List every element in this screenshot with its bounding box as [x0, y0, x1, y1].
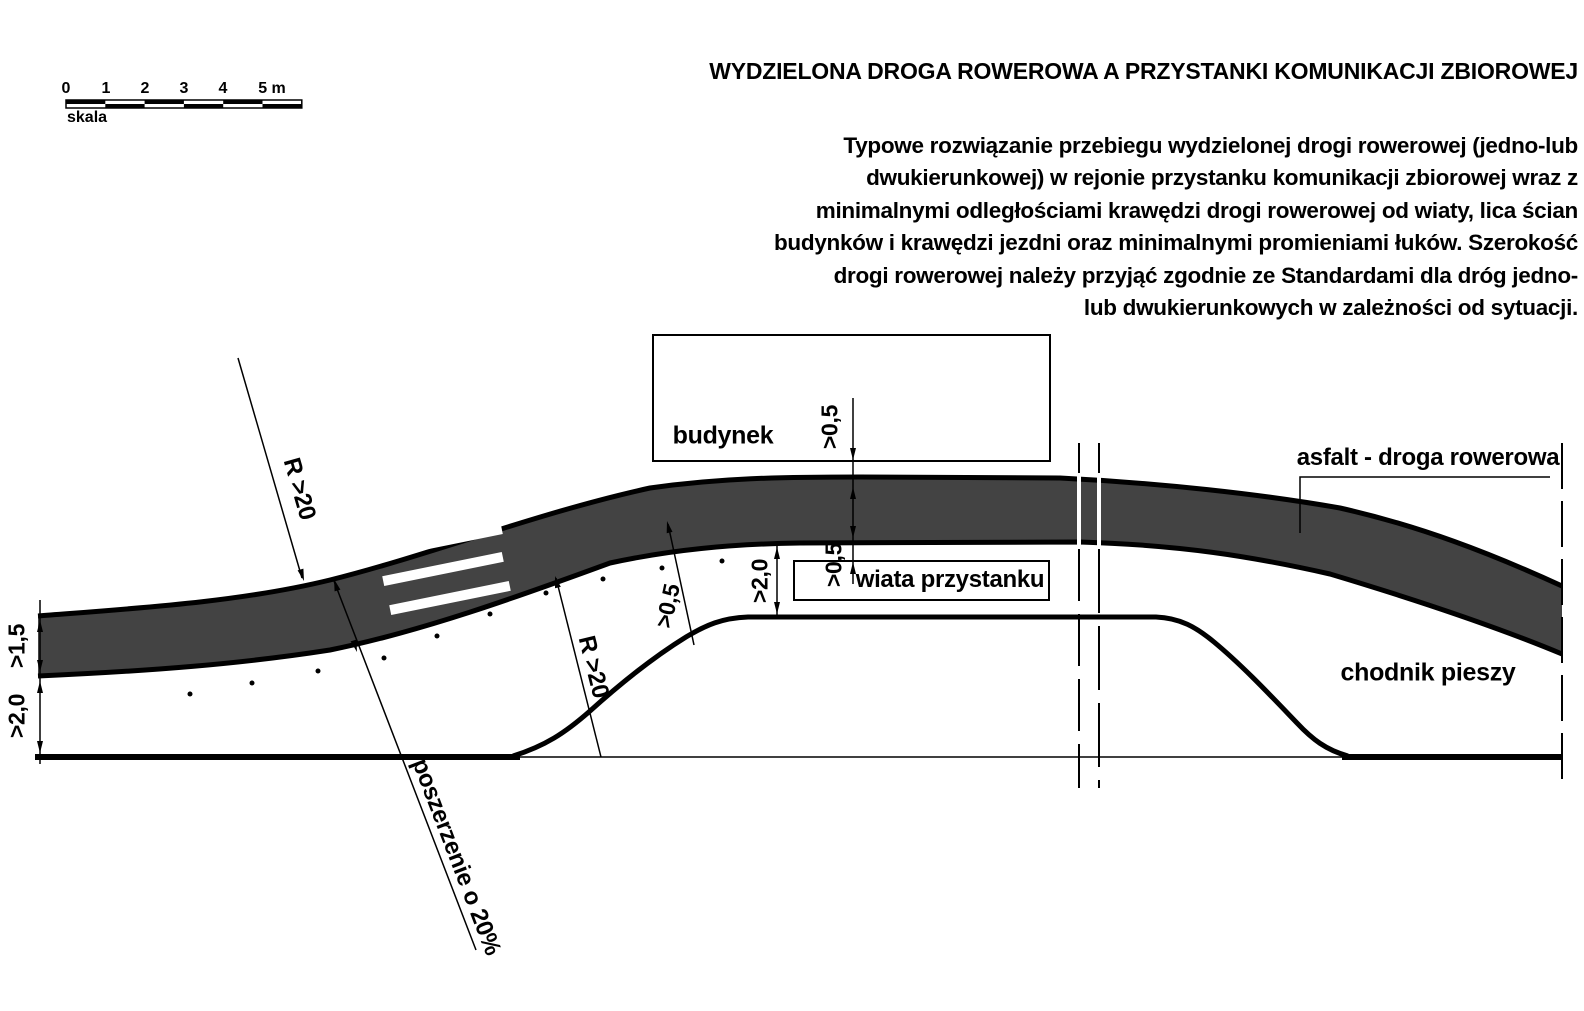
arrowhead — [774, 547, 780, 559]
scale-label-0: 0 — [62, 80, 71, 98]
platform-edge-line — [513, 617, 1348, 756]
dim-shelter-offset-label: >0,5 — [821, 543, 848, 587]
arrowhead — [37, 681, 43, 693]
building-label: budynek — [673, 422, 774, 451]
dim-platform-width-label: >2,0 — [747, 559, 774, 603]
scale-label-5m: 5 m — [258, 80, 286, 98]
dim-path-width-label: >1,5 — [4, 624, 31, 668]
scale-label-4: 4 — [219, 80, 228, 98]
page-title: WYDZIELONA DROGA ROWEROWA A PRZYSTANKI K… — [596, 58, 1578, 85]
dim-building-offset-label: >0,5 — [817, 405, 844, 449]
sidewalk-label: chodnik pieszy — [1340, 659, 1515, 688]
scale-label-3: 3 — [180, 80, 189, 98]
arrowhead — [298, 569, 304, 581]
scale-label-1: 1 — [102, 80, 111, 98]
arrowhead — [37, 741, 43, 753]
scale-caption: skala — [67, 109, 107, 127]
scale-bar — [66, 100, 302, 108]
scale-label-2: 2 — [141, 80, 150, 98]
arrowhead — [774, 602, 780, 614]
dim-sidewalk-width-label: >2,0 — [4, 694, 31, 738]
bike-path-label: asfalt - droga rowerowa — [1297, 444, 1560, 472]
description-text: Typowe rozwiązanie przebiegu wydzielonej… — [596, 130, 1578, 324]
technical-drawing-page: WYDZIELONA DROGA ROWEROWA A PRZYSTANKI K… — [0, 0, 1584, 1011]
shelter-label: wiata przystanku — [856, 566, 1045, 594]
